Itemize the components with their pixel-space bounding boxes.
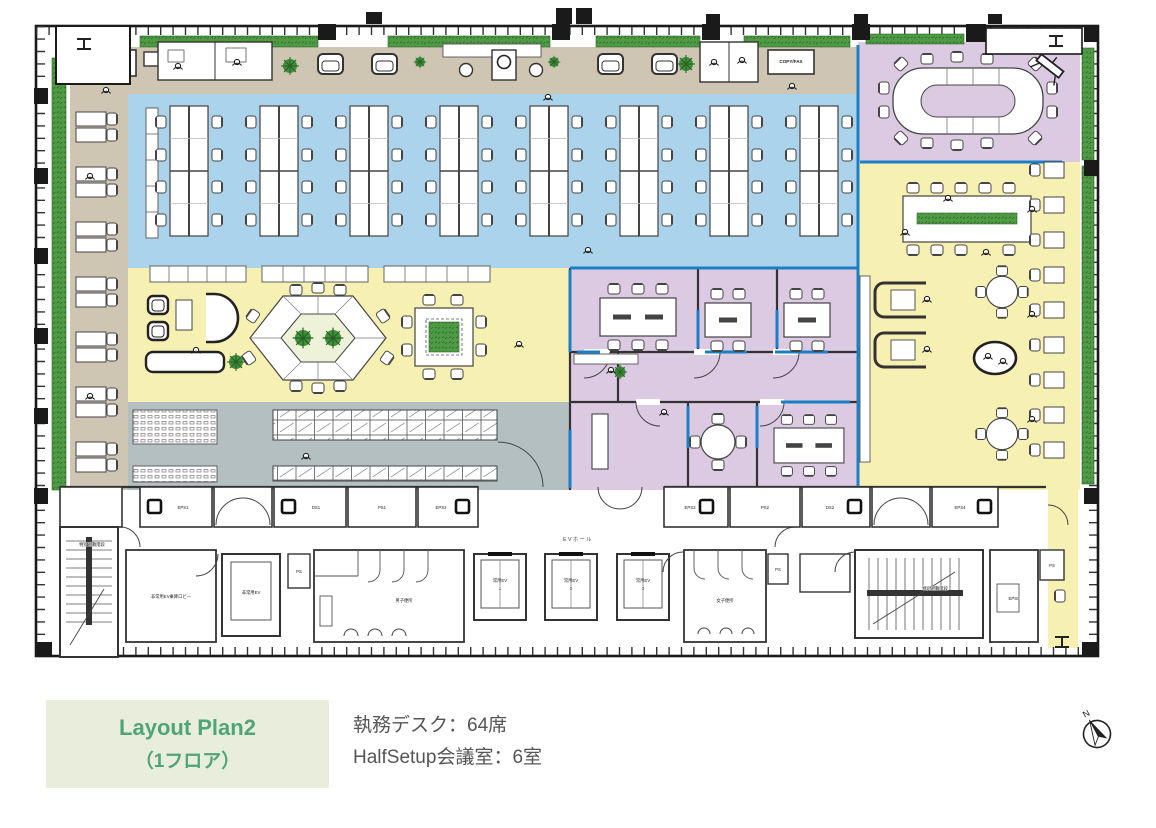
- plan-subtitle: （1フロア）: [135, 746, 241, 773]
- ev-lobby-label: 非常用EV乗降ロビー: [151, 593, 191, 600]
- stair-left-label: 特別避難階段: [79, 541, 105, 548]
- store-room: [800, 554, 850, 592]
- emergency-ev-label: 非常用EV: [242, 589, 261, 596]
- svg-text:常用EV: 常用EV: [636, 577, 650, 584]
- ds1-label: DS1: [312, 505, 321, 510]
- shaft-door: [148, 500, 161, 513]
- armchair-icon: [148, 322, 168, 340]
- lounge-chair: [318, 54, 343, 74]
- womens-wc-label: 女子便所: [716, 597, 734, 604]
- planter-top-4: [744, 36, 850, 47]
- emergency-ev-room: 非常用EV: [222, 554, 280, 636]
- planter-right-1: [1082, 48, 1094, 160]
- page: { "caption": { "title": "Layout Plan2", …: [0, 0, 1156, 828]
- armchair-icon: [148, 296, 168, 314]
- stool: [460, 64, 473, 77]
- locker-row: [273, 466, 497, 481]
- elevator-2: 常用EV 2: [545, 554, 597, 620]
- plan-label-box: Layout Plan2 （1フロア）: [46, 700, 329, 788]
- floor-plan: COPY/FAX COPY/FAX: [0, 0, 1156, 692]
- niche-topright: [986, 28, 1082, 54]
- planter-top-3: [596, 36, 700, 47]
- counter: [860, 276, 870, 462]
- stair-right-label: 特別避難階段: [922, 585, 948, 592]
- shaft-door: [282, 500, 295, 513]
- shaft-door: [848, 500, 861, 513]
- ps1-label: PS1: [378, 505, 387, 510]
- niche-topleft: [56, 26, 130, 84]
- ev-hall-label: EVホール: [563, 536, 593, 543]
- lounge-chair: [372, 54, 397, 74]
- mens-wc: 男子便所: [314, 550, 464, 642]
- shaft-door: [978, 500, 991, 513]
- stat-rooms: HalfSetup会議室：6室: [353, 742, 542, 774]
- ds2-label: DS2: [826, 505, 835, 510]
- cabinet-row: [150, 266, 490, 282]
- lounge-chair: [652, 54, 677, 74]
- compass-north-label: N: [1081, 708, 1091, 720]
- building-core: 特別避難階段 非常用EV乗降ロビー 非常用EV PS 男子便所 常用EV 1 常…: [60, 527, 1064, 657]
- eps4-label: EPS4: [955, 505, 967, 510]
- meeting-table-6: [774, 415, 844, 476]
- stool: [530, 64, 543, 77]
- mens-wc-label: 男子便所: [395, 597, 413, 604]
- planter-left: [52, 58, 66, 490]
- womens-wc: 女子便所: [684, 550, 766, 642]
- side-table: [176, 300, 192, 330]
- ps-a-label: PS: [296, 569, 302, 574]
- svg-text:常用EV: 常用EV: [564, 577, 578, 584]
- ps2-label: PS2: [761, 505, 770, 510]
- eps3-label: EPS3: [685, 505, 697, 510]
- locker-row: [273, 410, 497, 440]
- meeting-table-6: [600, 284, 676, 350]
- sofa-pod: [974, 342, 1016, 374]
- svg-text:常用EV: 常用EV: [493, 577, 507, 584]
- plan-stats: 執務デスク：64席 HalfSetup会議室：6室: [353, 710, 542, 775]
- elevator-1: 常用EV 1: [474, 554, 526, 620]
- shaft-door: [700, 500, 713, 513]
- wall-carrels: [1028, 162, 1065, 458]
- stair-right: [855, 550, 983, 638]
- elevator-3: 常用EV 3: [617, 554, 669, 620]
- planter-top-5: [866, 34, 964, 44]
- ps-c-label: PS: [1049, 563, 1055, 568]
- locker-block: [133, 410, 217, 444]
- sofa: [146, 352, 224, 372]
- shaft-door: [456, 500, 469, 513]
- north-compass: N: [1066, 692, 1128, 764]
- stat-desks: 執務デスク：64席: [353, 710, 542, 742]
- lounge-chair: [598, 54, 623, 74]
- planter-right-2: [1082, 166, 1094, 484]
- seat: [1055, 590, 1065, 602]
- square-table: [402, 295, 486, 379]
- eps2-label: EPS2: [436, 505, 448, 510]
- shelf: [574, 354, 638, 364]
- room-eps3: [664, 487, 728, 527]
- cabinet: [592, 414, 608, 469]
- eps1-label: EPS1: [178, 505, 190, 510]
- plan-title: Layout Plan2: [119, 715, 256, 741]
- ps-b-label: PS: [775, 567, 781, 572]
- locker-block: [133, 466, 217, 482]
- shaft-rooms: EPS1 DS1 PS1 EPS2 EPS3 PS2 DS2 EPS4 EVホー…: [60, 487, 998, 543]
- eps5-label: EPS5: [1009, 596, 1021, 601]
- copyfax-top-label: COPY/FAX: [779, 59, 803, 64]
